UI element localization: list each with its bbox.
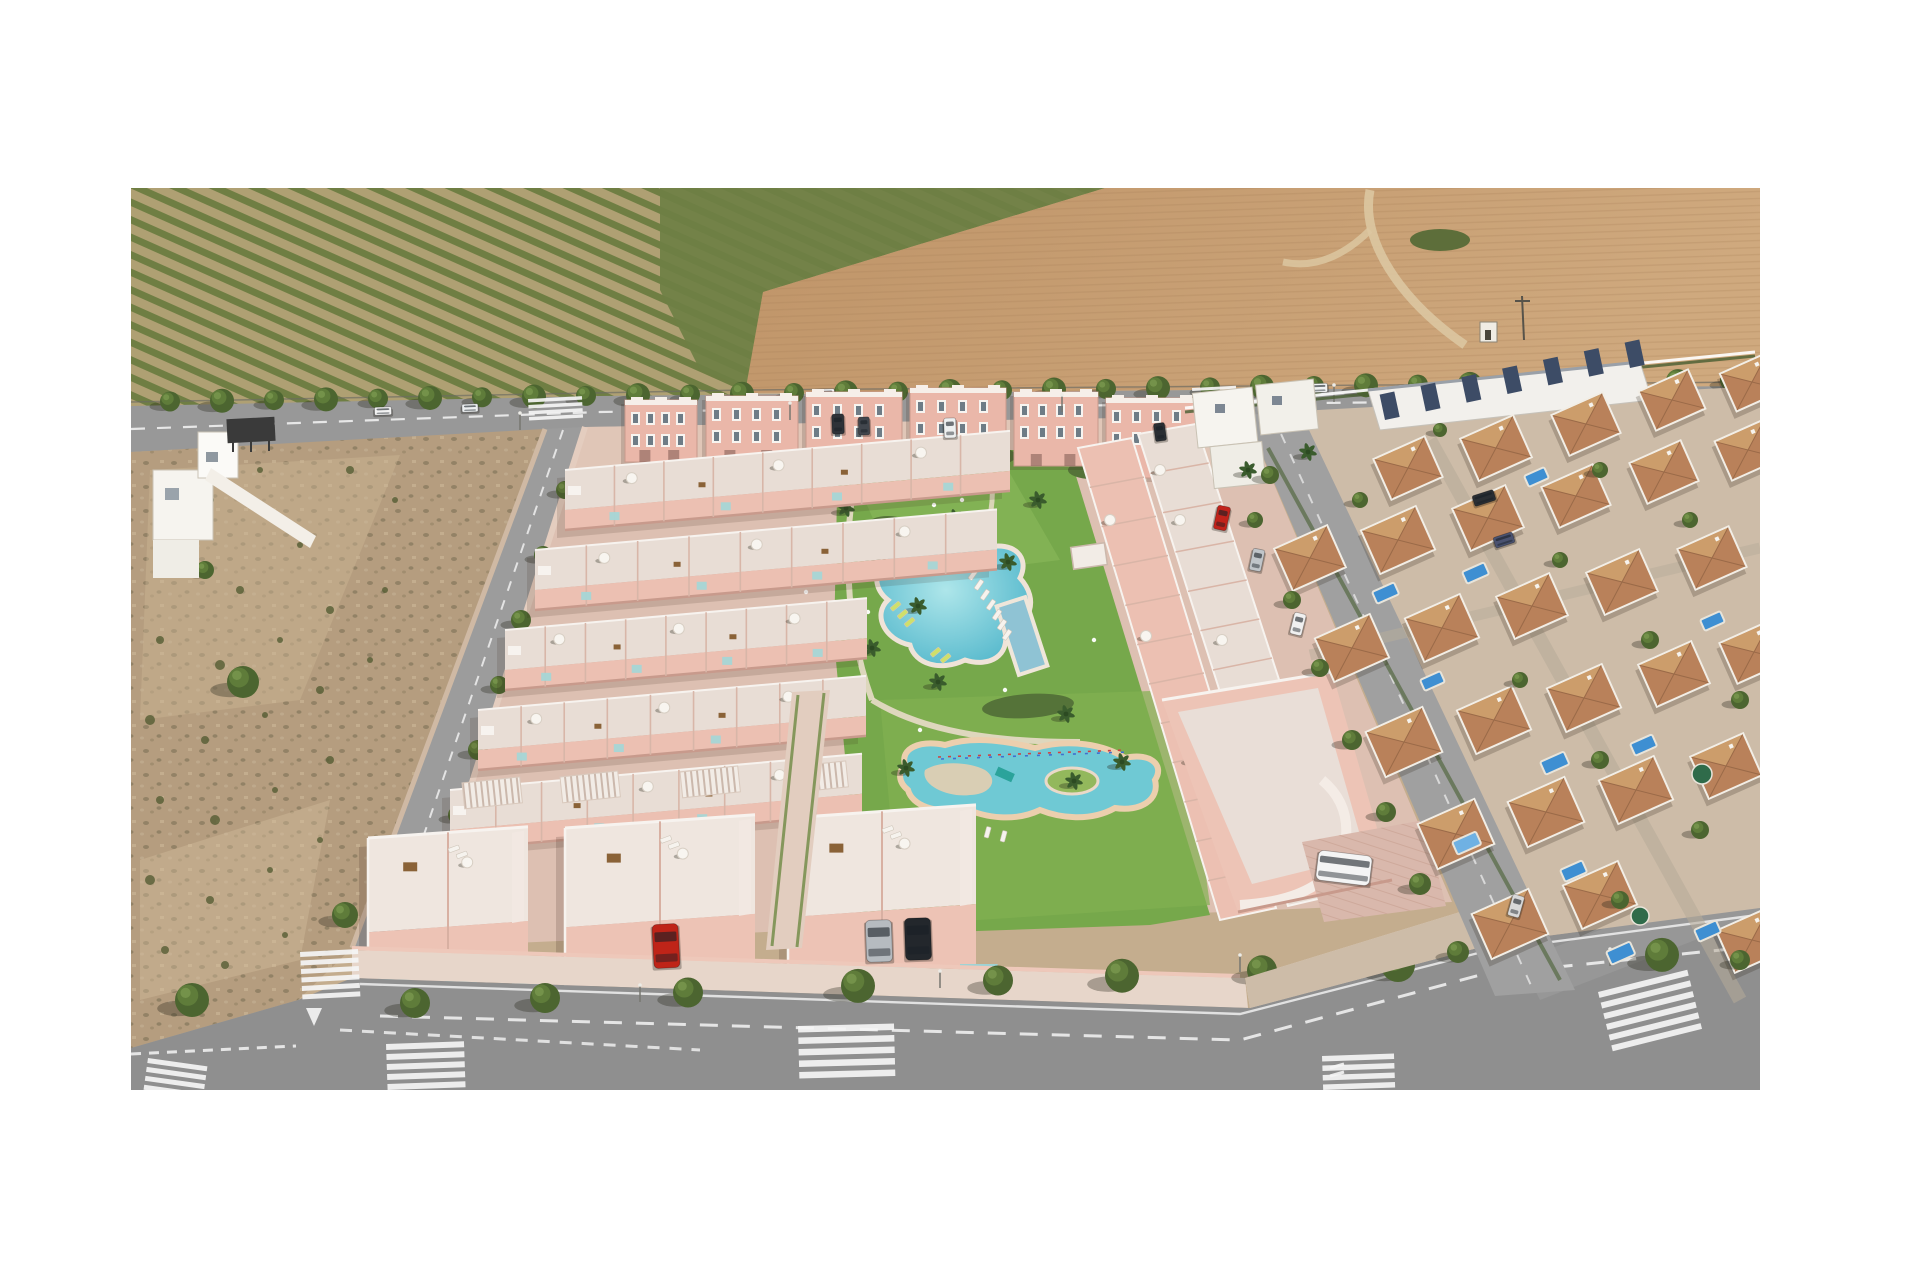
glass-window: [722, 657, 732, 665]
scrub-bush: [326, 756, 334, 764]
scrub-bush: [156, 796, 164, 804]
shed-door: [1485, 330, 1491, 340]
terrace-table: [594, 724, 601, 729]
scrub-bush: [392, 497, 398, 503]
car: [373, 407, 393, 418]
slatted-pergola: [680, 766, 740, 798]
scrub-bush: [221, 961, 229, 969]
glass-window: [943, 483, 953, 491]
scrub-bush: [156, 636, 164, 644]
terrace-table: [821, 549, 828, 554]
screenshot-canvas: [0, 0, 1920, 1280]
scrub-bush: [236, 586, 244, 594]
terrace-table: [729, 634, 736, 639]
staircase: [960, 809, 972, 906]
scrub-bush: [316, 686, 324, 694]
billboard: [226, 417, 275, 452]
glass-window: [581, 592, 591, 600]
terrace-table: [829, 844, 843, 853]
glass-window: [832, 493, 842, 501]
scrub-bush: [367, 657, 373, 663]
staircase: [739, 819, 751, 916]
terrace-table: [674, 562, 681, 567]
glass-window: [721, 502, 731, 510]
scrub-bush: [346, 466, 354, 474]
slatted-pergola: [560, 771, 620, 803]
scrub-bush: [206, 896, 214, 904]
car: [857, 417, 872, 437]
villa-window: [206, 452, 218, 462]
glass-window: [711, 736, 721, 744]
terrace-table: [699, 482, 706, 487]
car: [830, 414, 846, 437]
terrace-table: [403, 862, 417, 871]
terrace-table: [574, 803, 581, 808]
person: [1092, 638, 1096, 642]
glass-window: [614, 744, 624, 752]
car: [864, 920, 895, 965]
glass-window: [632, 665, 642, 673]
car: [650, 923, 681, 970]
terrace-table: [841, 470, 848, 475]
scrub-bush: [382, 587, 388, 593]
car: [903, 918, 934, 963]
scrub-bush: [277, 637, 283, 643]
glass-window: [610, 512, 620, 520]
scrub-bush: [282, 932, 288, 938]
slatted-pergola: [462, 777, 522, 809]
pool-pavilion: [1071, 543, 1108, 570]
glass-window: [928, 561, 938, 569]
scrub-bush: [257, 467, 263, 473]
car: [460, 404, 479, 415]
scrub-bush: [326, 606, 334, 614]
green-canopy: [1631, 907, 1649, 925]
scrub-bush: [201, 736, 209, 744]
field-tree-clump: [1410, 229, 1470, 251]
glass-window: [541, 673, 551, 681]
glass-window: [812, 572, 822, 580]
glass-window: [517, 753, 527, 761]
staircase: [512, 831, 524, 923]
aerial-render-photo: [0, 0, 1920, 1280]
scrub-bush: [267, 867, 273, 873]
terrace-table: [614, 644, 621, 649]
scrub-bush: [297, 542, 303, 548]
scrub-bush: [210, 815, 220, 825]
scrub-bush: [145, 715, 155, 725]
villa-window: [165, 488, 179, 500]
glass-window: [697, 582, 707, 590]
scrub-bush: [262, 712, 268, 718]
scrub-bush: [272, 787, 278, 793]
terrace-table: [719, 713, 726, 718]
glass-window: [813, 649, 823, 657]
scrub-bush: [161, 946, 169, 954]
green-canopy: [1692, 764, 1712, 784]
scrub-bush: [145, 875, 155, 885]
car: [942, 418, 958, 441]
terrace-table: [607, 854, 621, 863]
scrub-bush: [215, 660, 225, 670]
car: [1152, 422, 1169, 444]
person: [1003, 688, 1007, 692]
apartment-block: [621, 397, 697, 466]
scrub-bush: [317, 837, 323, 843]
person: [918, 728, 922, 732]
